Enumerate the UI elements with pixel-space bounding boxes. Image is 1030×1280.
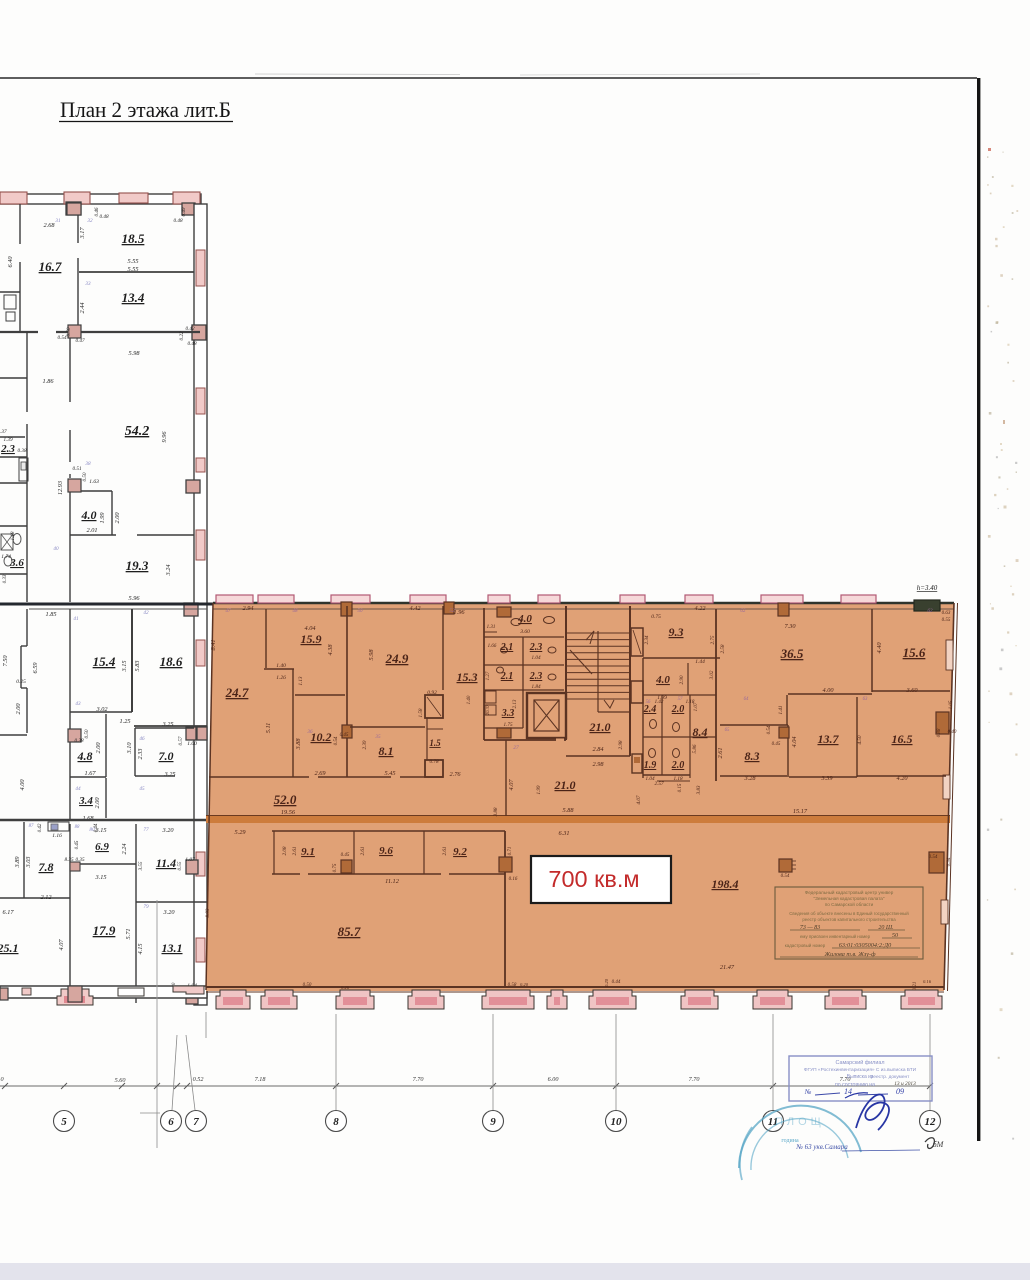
svg-text:0.55: 0.55 [177,861,183,870]
svg-text:63: 63 [863,697,868,702]
svg-text:0.33: 0.33 [3,574,8,583]
svg-text:2.61: 2.61 [442,846,448,855]
svg-text:0.44: 0.44 [612,980,621,985]
svg-text:2.4: 2.4 [643,704,657,715]
svg-text:87: 87 [29,824,34,829]
svg-text:52: 52 [449,608,455,614]
svg-text:3.17: 3.17 [79,227,86,240]
svg-text:4.07: 4.07 [635,795,642,804]
svg-text:0.22: 0.22 [179,331,185,340]
svg-text:13.7: 13.7 [818,732,840,746]
svg-text:21.47: 21.47 [720,964,735,971]
svg-text:4.38: 4.38 [327,644,334,656]
svg-text:33: 33 [85,281,91,287]
svg-text:0.21: 0.21 [913,982,918,991]
svg-text:1.40: 1.40 [467,695,472,704]
svg-text:2.0: 2.0 [671,760,685,771]
svg-text:3.60: 3.60 [905,687,918,694]
svg-text:9.6: 9.6 [379,845,393,857]
svg-text:3.89: 3.89 [14,856,21,869]
svg-text:2.57: 2.57 [654,781,663,787]
svg-text:15.6: 15.6 [903,645,926,660]
svg-text:4.42: 4.42 [409,605,421,612]
svg-text:43: 43 [75,700,81,707]
svg-text:0.51: 0.51 [72,466,81,472]
svg-text:0.15: 0.15 [678,783,683,792]
svg-text:1.99: 1.99 [99,512,106,524]
svg-text:3.39: 3.39 [820,775,833,782]
svg-text:8.93: 8.93 [205,908,211,917]
svg-text:77: 77 [143,827,149,833]
svg-text:3.28: 3.28 [743,775,756,782]
svg-text:1.99: 1.99 [536,785,542,794]
svg-text:0.54: 0.54 [929,855,938,860]
svg-text:кадастровый номер: кадастровый номер [785,943,826,948]
svg-text:2.61: 2.61 [717,747,724,758]
svg-text:0.42: 0.42 [38,823,43,832]
svg-text:0.54: 0.54 [767,725,772,734]
svg-text:0.54: 0.54 [334,736,339,745]
svg-text:0.16: 0.16 [509,877,518,882]
svg-text:35: 35 [375,734,381,740]
svg-text:0.47: 0.47 [75,337,84,344]
svg-text:6.9: 6.9 [95,841,109,853]
svg-text:8.35: 8.35 [64,857,73,863]
svg-text:0.50: 0.50 [66,327,72,336]
svg-text:16.7: 16.7 [39,259,62,274]
svg-text:5.60: 5.60 [115,1077,127,1084]
svg-text:0.34: 0.34 [947,857,952,866]
svg-text:0.48: 0.48 [173,217,182,224]
svg-text:5: 5 [61,1116,67,1128]
svg-text:32: 32 [87,218,93,224]
svg-text:19.3: 19.3 [126,558,149,573]
svg-text:0.50: 0.50 [82,472,88,481]
svg-text:7.8: 7.8 [39,860,54,874]
svg-text:40: 40 [53,545,59,552]
svg-text:0.54: 0.54 [781,874,790,879]
svg-text:3.20: 3.20 [161,827,174,834]
svg-text:Федеральный кадастровый центр: Федеральный кадастровый центр универ [805,889,894,895]
svg-text:5.98: 5.98 [128,350,140,357]
svg-text:1.67: 1.67 [84,770,96,777]
svg-text:План 2 этажа лит.Б: План 2 этажа лит.Б [60,97,231,122]
svg-text:3.10: 3.10 [126,742,133,755]
svg-text:2.3: 2.3 [0,443,15,455]
svg-text:1.37: 1.37 [0,429,7,435]
svg-text:1.66: 1.66 [488,644,497,649]
svg-text:5.98: 5.98 [368,649,375,661]
svg-text:ему присвоен инвентарный номер: ему присвоен инвентарный номер [800,934,871,939]
svg-text:h=3.40: h=3.40 [917,584,938,592]
svg-text:4.00: 4.00 [822,687,834,694]
svg-text:0.26: 0.26 [341,985,350,990]
svg-text:1.86: 1.86 [42,378,54,385]
svg-text:1.16: 1.16 [52,833,62,839]
svg-text:2.13: 2.13 [513,699,518,708]
svg-text:9: 9 [490,1116,496,1128]
svg-text:3.83: 3.83 [696,785,702,794]
svg-text:по состоянию на: по состоянию на [835,1082,875,1088]
svg-text:реестр объектов капитального с: реестр объектов капитального строительст… [802,917,896,922]
svg-text:2.58: 2.58 [720,644,726,653]
svg-text:4.04: 4.04 [791,736,798,747]
svg-text:0.75: 0.75 [651,614,661,620]
svg-text:4.0: 4.0 [517,613,532,625]
svg-text:0.57: 0.57 [178,736,184,745]
svg-text:Сведения об объекте внесены в: Сведения об объекте внесены в Единый гос… [789,911,909,916]
svg-text:0.50: 0.50 [84,729,90,738]
svg-text:5.86: 5.86 [692,744,698,753]
svg-text:1.31: 1.31 [487,625,496,630]
svg-text:62: 62 [740,608,746,614]
svg-text:0.55: 0.55 [942,618,951,623]
svg-text:0.44: 0.44 [94,823,99,832]
svg-text:1.41: 1.41 [777,705,784,714]
svg-text:3.6: 3.6 [9,557,24,569]
svg-text:7.0: 7.0 [159,749,174,763]
svg-text:0.54: 0.54 [57,334,66,341]
svg-text:3.24: 3.24 [165,564,172,576]
svg-text:0.20: 0.20 [520,982,529,987]
svg-text:0.88: 0.88 [937,728,942,737]
svg-text:19.56: 19.56 [281,809,296,816]
svg-text:42: 42 [143,609,149,616]
svg-text:2.01: 2.01 [86,527,97,534]
svg-text:21.0: 21.0 [589,720,611,734]
svg-text:1.58: 1.58 [418,708,424,717]
svg-text:2.98: 2.98 [592,761,604,768]
svg-text:3.55: 3.55 [138,861,144,870]
svg-text:ФГУП «Ростехинвентаризация» С: ФГУП «Ростехинвентаризация» С из.выписка… [804,1067,917,1073]
svg-text:5.88: 5.88 [562,807,574,814]
svg-text:1.13: 1.13 [298,676,304,685]
svg-text:17.9: 17.9 [93,923,116,938]
svg-text:7.70: 7.70 [689,1076,701,1083]
svg-text:9.2: 9.2 [453,846,467,858]
svg-text:2.3: 2.3 [529,642,543,653]
svg-text:2.44: 2.44 [79,302,86,313]
svg-text:24.7: 24.7 [225,685,249,700]
svg-text:2.90: 2.90 [679,675,685,684]
svg-text:1.27: 1.27 [486,671,491,680]
svg-text:0.58: 0.58 [508,983,517,988]
svg-text:2.34: 2.34 [643,635,650,644]
svg-text:1.5: 1.5 [429,738,441,748]
svg-text:0.38: 0.38 [74,738,83,744]
svg-text:0.42: 0.42 [185,325,194,332]
svg-text:1.44: 1.44 [695,658,705,665]
svg-text:5.55: 5.55 [127,266,138,273]
svg-text:2.84: 2.84 [592,746,603,753]
svg-text:2.1: 2.1 [500,642,514,653]
svg-text:6.40: 6.40 [7,256,14,268]
svg-text:15.3: 15.3 [457,670,478,684]
svg-text:15.9: 15.9 [301,632,322,646]
svg-text:27: 27 [513,745,519,751]
svg-text:0: 0 [0,1076,4,1083]
svg-text:0.63: 0.63 [942,611,951,616]
svg-text:4.04: 4.04 [304,625,315,632]
svg-text:2.94: 2.94 [242,605,253,612]
svg-text:4.40: 4.40 [876,642,883,654]
svg-text:65: 65 [725,728,730,733]
svg-text:44: 44 [75,785,81,792]
svg-text:0.16: 0.16 [923,979,932,984]
svg-text:24.9: 24.9 [385,651,409,666]
svg-text:0.35: 0.35 [75,857,84,863]
svg-text:3.88: 3.88 [295,738,302,751]
svg-text:9.96: 9.96 [161,431,168,443]
svg-text:1.26: 1.26 [276,675,286,681]
svg-text:64: 64 [744,697,749,702]
svg-text:4.07: 4.07 [58,939,65,951]
svg-text:12.93: 12.93 [57,481,64,495]
svg-text:41: 41 [73,615,79,622]
svg-text:6.17: 6.17 [2,909,14,916]
svg-text:1.00: 1.00 [187,741,197,747]
svg-text:2.68: 2.68 [43,222,55,229]
svg-text:№ 63 укв.Самара: № 63 укв.Самара [795,1143,848,1151]
svg-text:2.00: 2.00 [95,742,102,754]
svg-text:4.8: 4.8 [77,749,93,763]
svg-text:46: 46 [139,735,145,742]
svg-text:2.0: 2.0 [671,704,685,715]
svg-text:1.84: 1.84 [531,683,540,690]
svg-text:2.12: 2.12 [40,894,52,901]
svg-text:38: 38 [85,461,91,467]
svg-text:700 кв.м: 700 кв.м [548,866,639,892]
svg-text:2.1: 2.1 [500,671,514,682]
svg-text:7.50: 7.50 [2,655,9,667]
svg-text:1.96: 1.96 [453,609,465,616]
svg-text:57: 57 [678,697,683,702]
svg-text:36.5: 36.5 [780,646,804,661]
svg-text:3.15: 3.15 [94,874,106,881]
svg-text:4.0: 4.0 [81,508,97,522]
svg-text:10: 10 [611,1116,623,1128]
svg-text:0.48: 0.48 [187,340,196,347]
svg-text:3.03: 3.03 [25,856,32,868]
svg-text:4.22: 4.22 [694,605,706,612]
svg-text:3.60: 3.60 [519,629,530,635]
svg-text:1.85: 1.85 [45,611,56,618]
svg-text:бМ: бМ [933,1140,945,1149]
svg-text:11.12: 11.12 [385,878,400,885]
svg-text:2.61: 2.61 [360,846,366,855]
svg-text:0.25: 0.25 [16,679,26,685]
svg-text:45: 45 [139,785,145,792]
svg-text:3.25: 3.25 [163,771,175,778]
svg-text:9.3: 9.3 [669,625,684,639]
svg-text:2.08: 2.08 [282,846,288,855]
svg-text:3.20: 3.20 [162,909,175,916]
svg-text:0.20: 0.20 [604,978,609,987]
svg-text:"Земельная кадастровая палата": "Земельная кадастровая палата" [814,896,885,901]
svg-text:31: 31 [55,218,61,224]
svg-text:3.02: 3.02 [710,670,715,679]
svg-text:1.42: 1.42 [655,700,664,705]
svg-text:1.9: 1.9 [644,760,657,771]
svg-text:47: 47 [225,607,231,614]
svg-text:1.39: 1.39 [3,437,12,443]
svg-text:1.05: 1.05 [949,700,954,709]
svg-text:56: 56 [646,700,651,705]
svg-text:2.00: 2.00 [15,703,22,715]
svg-text:1.07: 1.07 [694,702,699,711]
svg-text:2.3: 2.3 [529,671,543,682]
svg-text:0.75: 0.75 [333,863,338,872]
svg-text:1.74: 1.74 [1,553,11,560]
svg-text:5.96: 5.96 [128,595,140,602]
svg-text:Самарский филиал: Самарский филиал [836,1059,885,1066]
svg-text:7.18: 7.18 [255,1076,267,1083]
svg-text:11.4: 11.4 [156,856,176,870]
svg-text:85.7: 85.7 [338,924,361,939]
svg-text:0.45: 0.45 [772,742,781,747]
svg-text:8.1: 8.1 [379,744,394,758]
svg-text:0.52: 0.52 [193,1076,204,1083]
svg-text:8.4: 8.4 [693,725,708,739]
svg-text:0.92: 0.92 [427,690,437,696]
svg-text:13.4: 13.4 [122,290,145,305]
svg-text:6.59: 6.59 [32,662,39,674]
svg-text:1.63: 1.63 [89,479,99,485]
svg-text:1.40: 1.40 [276,662,286,669]
svg-text:0.50: 0.50 [303,983,312,988]
svg-text:8: 8 [333,1116,339,1128]
svg-text:0.45: 0.45 [341,853,350,858]
svg-text:1.18: 1.18 [10,531,16,540]
svg-text:реестр. документ: реестр. документ [871,1075,911,1080]
svg-text:2.61: 2.61 [292,846,298,855]
svg-text:4.50: 4.50 [856,735,863,744]
svg-text:3.4: 3.4 [78,795,93,807]
svg-text:7.30: 7.30 [784,623,796,630]
svg-text:3.25: 3.25 [161,721,173,728]
svg-text:7.70: 7.70 [413,1076,425,1083]
svg-text:25.1: 25.1 [0,941,19,955]
svg-text:4.07: 4.07 [508,779,515,791]
svg-text:3.02: 3.02 [95,706,108,713]
svg-text:0.71: 0.71 [508,847,513,856]
svg-text:12: 12 [925,1116,937,1128]
svg-text:13.1: 13.1 [162,941,183,955]
svg-text:4.20: 4.20 [896,775,908,782]
svg-text:18.6: 18.6 [160,654,183,669]
svg-text:15.17: 15.17 [793,808,808,815]
svg-text:50: 50 [357,608,363,614]
svg-text:4.15: 4.15 [137,943,144,954]
svg-text:3.88: 3.88 [493,807,499,816]
svg-text:2.24: 2.24 [121,843,128,854]
svg-text:5.71: 5.71 [125,928,132,939]
svg-text:2.00: 2.00 [94,797,101,809]
svg-text:0.38: 0.38 [17,448,26,454]
svg-text:62: 62 [928,609,934,614]
svg-text:1.25: 1.25 [119,718,130,725]
svg-text:4.00: 4.00 [19,779,26,791]
svg-text:15.4: 15.4 [93,654,116,669]
svg-text:4.0: 4.0 [655,674,670,686]
svg-text:2.76: 2.76 [449,771,461,778]
svg-text:1.07: 1.07 [185,857,195,863]
svg-text:0.45: 0.45 [340,733,349,738]
svg-text:по Самарской области: по Самарской области [825,901,874,907]
svg-text:54.2: 54.2 [125,424,150,439]
svg-text:ПЛОЩ: ПЛОЩ [775,1116,825,1128]
svg-text:16.5: 16.5 [892,732,913,746]
svg-text:2.98: 2.98 [618,740,624,749]
svg-text:20.37: 20.37 [485,704,490,715]
svg-text:0.78: 0.78 [429,759,438,765]
svg-text:2.00: 2.00 [114,512,121,524]
svg-text:6.00: 6.00 [548,1076,560,1083]
svg-text:18.5: 18.5 [122,231,145,246]
svg-text:5.55: 5.55 [127,258,138,265]
svg-text:5.29: 5.29 [234,829,246,836]
svg-text:6.31: 6.31 [558,830,569,837]
svg-text:10.2: 10.2 [311,730,332,744]
svg-text:48: 48 [292,607,298,614]
svg-text:88: 88 [75,825,80,830]
svg-text:21.0: 21.0 [554,778,576,792]
svg-text:1.75: 1.75 [503,722,512,728]
svg-text:9.1: 9.1 [301,846,315,858]
svg-text:52.0: 52.0 [274,792,297,807]
svg-text:0.45: 0.45 [75,840,80,849]
svg-text:198.4: 198.4 [712,877,739,891]
svg-text:6: 6 [168,1116,174,1128]
svg-text:09: 09 [896,1087,904,1096]
svg-text:79: 79 [143,904,149,910]
svg-text:36: 36 [307,729,313,735]
svg-text:0.40: 0.40 [948,730,957,735]
svg-text:5.83: 5.83 [134,660,141,671]
svg-text:1.04: 1.04 [531,654,540,661]
svg-text:0.49: 0.49 [180,207,187,216]
svg-text:5.11: 5.11 [265,723,272,734]
svg-text:8.3: 8.3 [745,749,760,763]
svg-text:3.15: 3.15 [121,660,128,672]
svg-text:№: № [804,1088,812,1096]
svg-text:8.41: 8.41 [210,639,217,650]
svg-text:2.39: 2.39 [362,740,368,749]
svg-text:3.3: 3.3 [501,708,515,719]
svg-text:7: 7 [193,1116,199,1128]
svg-text:0.48: 0.48 [99,213,108,220]
svg-text:2.33: 2.33 [137,748,144,759]
